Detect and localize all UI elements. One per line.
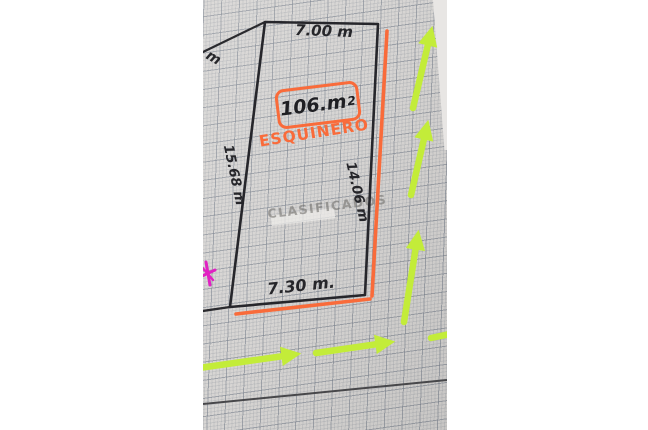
magenta-mark-icon	[203, 262, 215, 285]
area-value: 106.m	[279, 91, 348, 121]
green-arrow-right-2-icon	[316, 343, 385, 353]
area-superscript: 2	[347, 93, 357, 108]
sketch-lines	[203, 0, 447, 430]
green-arrow-up-1-icon	[413, 36, 430, 108]
dimension-label-top: 7.00 m	[289, 21, 360, 41]
green-arrow-right-3-icon	[431, 334, 447, 338]
screenshot-frame: CLASIFICADOS	[0, 0, 648, 430]
green-arrow-up-3-icon	[404, 240, 417, 322]
graph-paper-photo: CLASIFICADOS	[203, 0, 447, 430]
road-line	[203, 380, 447, 404]
green-arrow-right-1-icon	[203, 355, 291, 368]
street-line-extension	[203, 307, 230, 311]
highlight-right-edge	[372, 31, 387, 296]
green-arrow-up-2-icon	[411, 130, 426, 195]
